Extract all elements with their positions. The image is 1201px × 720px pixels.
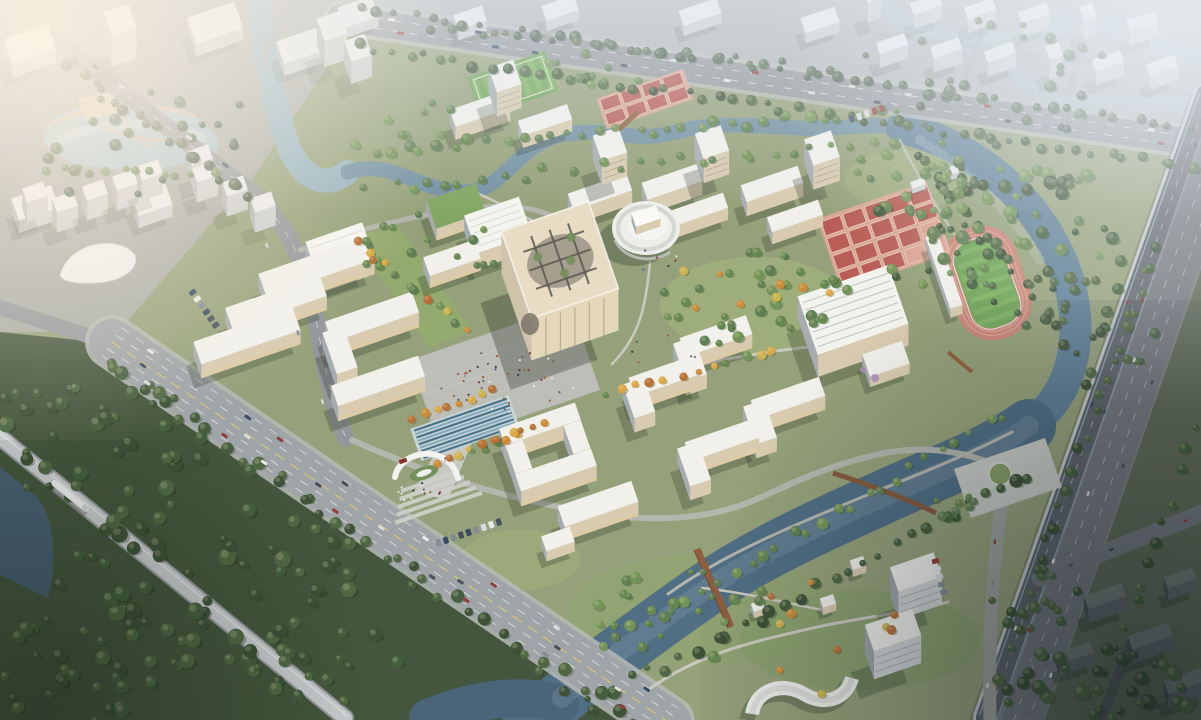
atmosphere-haze xyxy=(0,0,1201,720)
campus-scene xyxy=(0,0,1201,720)
bottom-right-dusk xyxy=(700,300,1201,720)
aerial-rendering xyxy=(0,0,1201,720)
bottom-left-dusk xyxy=(0,440,420,720)
